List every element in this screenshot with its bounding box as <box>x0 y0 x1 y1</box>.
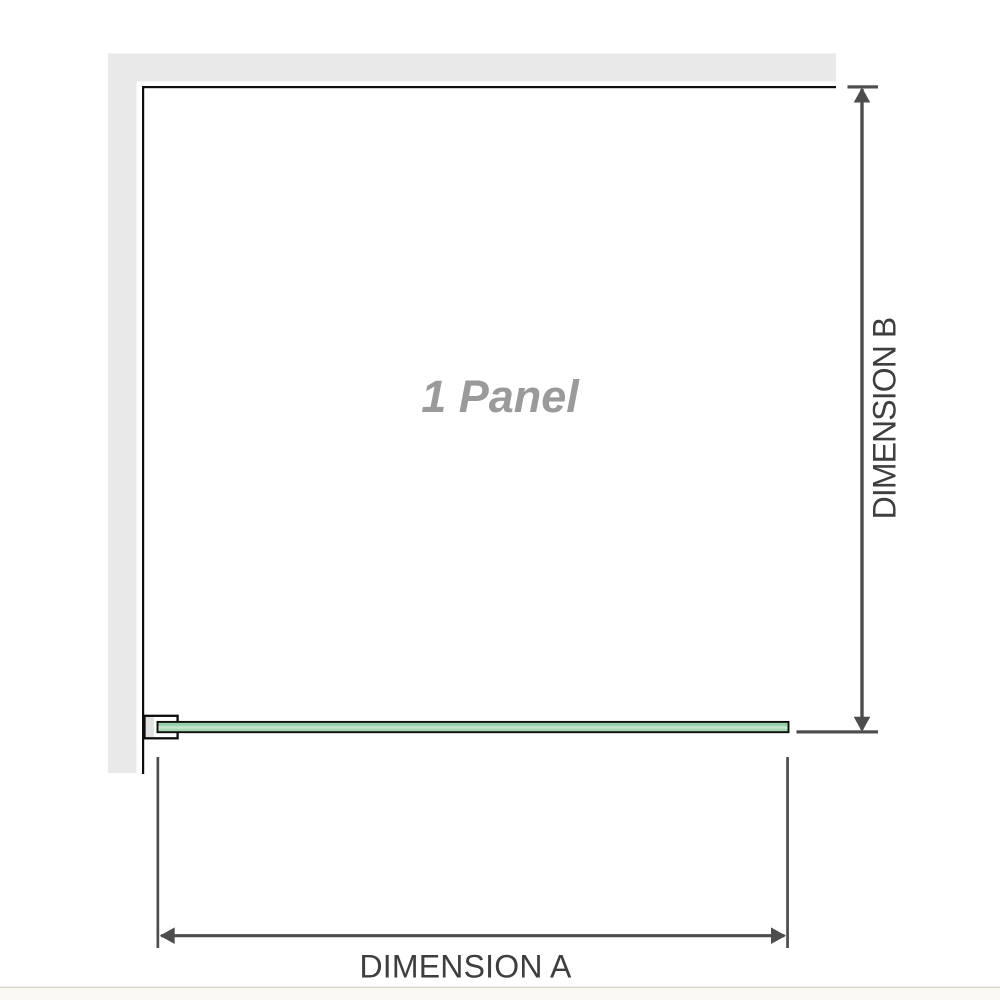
svg-text:DIMENSION B: DIMENSION B <box>867 318 903 520</box>
svg-text:1 Panel: 1 Panel <box>421 371 580 422</box>
svg-text:DIMENSION A: DIMENSION A <box>359 949 571 985</box>
